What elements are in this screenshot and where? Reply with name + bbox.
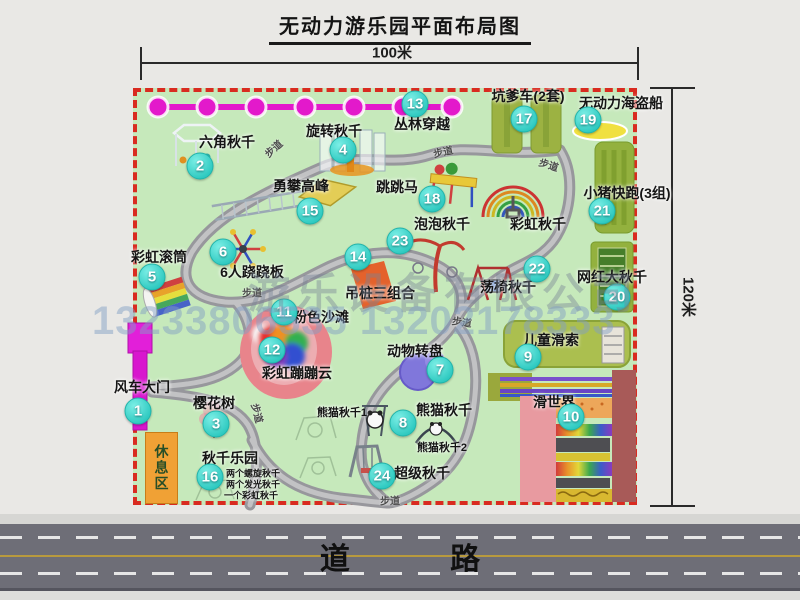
attraction-badge-13: 13 [402,91,429,118]
attraction-badge-20: 20 [604,284,631,311]
road-label: 道 路 [274,534,526,578]
attraction-badge-11: 11 [271,299,298,326]
attraction-badge-3: 3 [203,411,230,438]
attraction-badge-5: 5 [139,264,166,291]
park-layout-plan: 无动力游乐园平面布局图 [0,0,800,600]
attraction-label-rainbow-roller: 彩虹滚筒 [131,247,187,267]
attraction-badge-21: 21 [589,198,616,225]
walkway-label-5: 步道 [451,312,473,330]
attraction-badge-10: 10 [558,404,585,431]
attraction-label-super-swing: 超级秋千 [394,463,450,483]
attraction-label-rotating-swing: 旋转秋千 [306,121,362,141]
attraction-badge-15: 15 [297,198,324,225]
attraction-label-windmill-gate: 风车大门 [114,377,170,397]
attraction-badge-19: 19 [575,107,602,134]
attraction-badge-16: 16 [197,464,224,491]
attraction-label-rainbow-cloud: 彩虹蹦蹦云 [262,363,332,383]
attraction-label-seesaw: 6人跷跷板 [220,262,284,282]
road-shoulder [0,591,800,600]
attraction-label-panda-swing-2: 熊猫秋千2 [417,439,467,455]
attraction-badge-14: 14 [345,244,372,271]
attraction-label-jumping-horse: 跳跳马 [376,177,418,197]
walkway-label-7: 步道 [380,493,400,508]
attraction-label-hanging-piles: 吊桩三组合 [345,283,415,303]
attraction-label-bubble-swing: 泡泡秋千 [414,214,470,234]
attraction-badge-18: 18 [419,186,446,213]
attraction-badge-6: 6 [210,239,237,266]
attraction-label-panda-swing-1: 熊猫秋千1 [317,404,367,420]
attraction-label-panda-swing: 熊猫秋千 [416,400,472,420]
attraction-badge-7: 7 [427,357,454,384]
attraction-badge-22: 22 [524,256,551,283]
attraction-label-jungle-crossing: 丛林穿越 [394,114,450,134]
attraction-badge-1: 1 [125,398,152,425]
attraction-badge-9: 9 [515,344,542,371]
attraction-label-bumpy-cart: 坑爹车(2套) [491,86,564,106]
attraction-badge-12: 12 [259,337,286,364]
attraction-label-rainbow-swing: 彩虹秋千 [510,214,566,234]
rest-area: 休息区 [145,432,178,504]
attraction-badge-8: 8 [390,410,417,437]
attraction-badge-2: 2 [187,153,214,180]
walkway-label-4: 步道 [242,285,262,300]
attraction-badge-23: 23 [387,228,414,255]
dimension-height-label: 120米 [679,277,700,317]
dimension-width-label: 100米 [372,42,412,63]
page-title: 无动力游乐园平面布局图 [269,10,531,45]
attraction-label-climbing-peak: 勇攀高峰 [273,176,329,196]
attraction-badge-4: 4 [330,137,357,164]
attraction-label-hexagon-swing: 六角秋千 [199,132,255,152]
attraction-badge-17: 17 [511,106,538,133]
attraction-badge-24: 24 [369,463,396,490]
attraction-label-swing-chair: 荡椅秋千 [480,277,536,297]
rest-area-label: 休息区 [152,444,172,492]
road: 道 路 [0,524,800,591]
attraction-label-pink-beach: 粉色沙滩 [293,307,349,327]
swing-park-note-3: 一个彩虹秋千 [224,489,278,502]
